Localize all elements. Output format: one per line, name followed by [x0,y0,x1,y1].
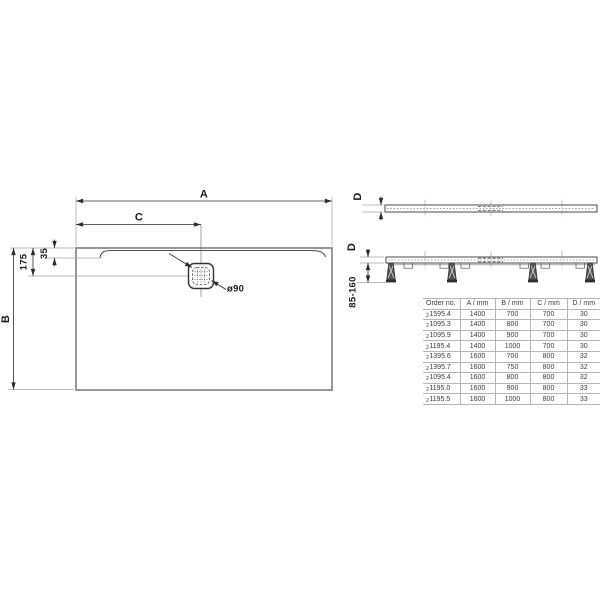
order-prefix: 2 [426,355,429,361]
order-no: 21395.7 [423,362,460,373]
order-no: 21395.6 [423,351,460,362]
value-d: 30 [567,330,600,341]
value-b: 1000 [495,341,530,352]
order-no: 21095.3 [423,320,460,331]
value-c: 800 [530,351,567,362]
value-b: 700 [495,309,530,320]
value-a: 1600 [460,394,495,405]
value-a: 1600 [460,383,495,394]
value-c: 800 [530,383,567,394]
table-row: 21395.6 1600 700 800 32 [423,351,600,362]
value-c: 700 [530,320,567,331]
order-prefix: 2 [426,345,429,351]
value-b: 900 [495,383,530,394]
order-prefix: 2 [426,334,429,340]
col-header-b: B / mm [495,299,530,310]
value-a: 1400 [460,341,495,352]
table-row: 21095.9 1400 900 700 30 [423,330,600,341]
value-d: 32 [567,351,600,362]
order-prefix: 2 [426,387,429,393]
value-d: 33 [567,394,600,405]
dim-175-label: 175 [19,253,30,270]
order-no: 21095.9 [423,330,460,341]
value-c: 700 [530,330,567,341]
adjustable-feet [386,263,595,282]
drain-diameter-label: ø90 [227,284,244,295]
value-a: 1600 [460,351,495,362]
table-row: 21195.0 1600 900 800 33 [423,383,600,394]
col-header-a: A / mm [460,299,495,310]
install-height-label: 85-160 [348,276,359,307]
drain-grate [189,264,214,289]
value-d: 32 [567,362,600,373]
value-d: 30 [567,320,600,331]
table-row: 21395.7 1600 750 800 32 [423,362,600,373]
order-number: 1195.4 [429,343,450,350]
order-number: 1595.4 [429,311,450,318]
value-c: 800 [530,394,567,405]
value-b: 800 [495,373,530,384]
order-no: 21195.0 [423,383,460,394]
col-header-c: C / mm [530,299,567,310]
spec-table: Order no. A / mm B / mm C / mm D / mm 21… [423,298,600,405]
drain-diameter-leader-upper [169,254,192,268]
value-c: 800 [530,362,567,373]
value-c: 700 [530,341,567,352]
order-number: 1395.6 [429,353,450,360]
waste-channel-curve [100,251,326,258]
value-a: 1400 [460,330,495,341]
value-d: 30 [567,309,600,320]
dim-b-label: B [0,315,12,323]
value-b: 700 [495,351,530,362]
foot [386,263,396,282]
value-d: 32 [567,373,600,384]
value-b: 750 [495,362,530,373]
order-number: 1095.4 [429,374,450,381]
value-a: 1400 [460,309,495,320]
dim-a-label: A [200,189,208,201]
order-prefix: 2 [426,376,429,382]
order-number: 1195.0 [429,385,450,392]
order-prefix: 2 [426,323,429,329]
table-row: 21095.3 1400 800 700 30 [423,320,600,331]
order-number: 1095.3 [429,321,450,328]
col-header-d: D / mm [567,299,600,310]
value-b: 1000 [495,394,530,405]
table-row: 21195.4 1400 1000 700 30 [423,341,600,352]
order-number: 1095.9 [429,332,450,339]
table-row: 21195.5 1600 1000 800 33 [423,394,600,405]
shower-tray-technical-drawing: ø90 A C B 175 35 D [0,0,600,600]
profile-d-label: D [352,192,364,200]
order-prefix: 2 [426,366,429,372]
value-b: 900 [495,330,530,341]
value-a: 1600 [460,362,495,373]
side-profile-view: D [352,192,597,220]
order-prefix: 2 [426,398,429,404]
dim-35-label: 35 [39,248,50,260]
value-b: 800 [495,320,530,331]
table-row: 21595.4 1400 700 700 30 [423,309,600,320]
order-no: 21195.5 [423,394,460,405]
plan-view: ø90 A C B 175 35 [0,189,332,391]
mounting-brackets [404,263,585,268]
value-d: 33 [567,383,600,394]
value-a: 1600 [460,373,495,384]
value-a: 1400 [460,320,495,331]
table-header-row: Order no. A / mm B / mm C / mm D / mm [423,299,600,310]
installed-d-label: D [346,243,358,251]
order-number: 1195.5 [429,396,450,403]
order-number: 1395.7 [429,364,450,371]
table-row: 21095.4 1600 800 800 32 [423,373,600,384]
dim-c-label: C [135,212,143,224]
foot [528,263,538,282]
order-prefix: 2 [426,313,429,319]
foot [585,263,595,282]
order-no: 21195.4 [423,341,460,352]
value-c: 700 [530,309,567,320]
order-no: 21595.4 [423,309,460,320]
value-c: 800 [530,373,567,384]
value-d: 30 [567,341,600,352]
col-header-order: Order no. [423,299,460,310]
order-no: 21095.4 [423,373,460,384]
